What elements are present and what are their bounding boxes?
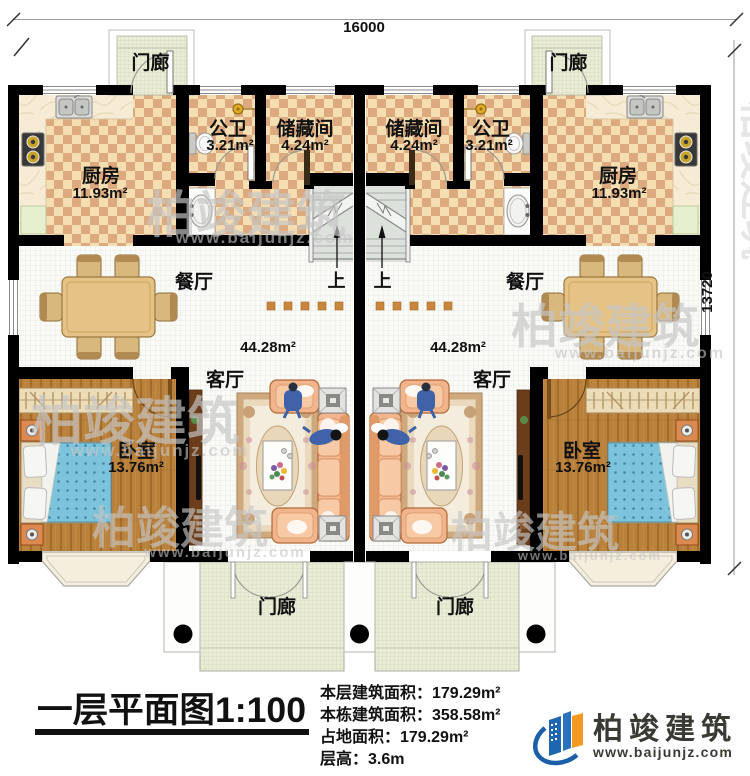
svg-text:www.baijunjz.com: www.baijunjz.com — [592, 744, 733, 760]
svg-text:门廊: 门廊 — [436, 595, 474, 618]
svg-text:www.baijunjz.com: www.baijunjz.com — [554, 345, 725, 362]
svg-text:层高：3.6m: 层高：3.6m — [320, 749, 404, 768]
svg-text:13720: 13720 — [699, 271, 716, 313]
svg-text:厨房: 厨房 — [599, 164, 637, 187]
svg-text:客厅: 客厅 — [206, 368, 244, 391]
svg-text:柏竣建筑: 柏竣建筑 — [593, 712, 737, 746]
svg-text:占地面积：179.29m²: 占地面积：179.29m² — [320, 727, 469, 746]
svg-text:44.28m²: 44.28m² — [240, 339, 296, 356]
svg-text:门廊: 门廊 — [131, 51, 169, 74]
svg-text:13.76m²: 13.76m² — [555, 459, 611, 476]
svg-text:www.baijunjz.com: www.baijunjz.com — [175, 228, 355, 247]
svg-text:上: 上 — [374, 271, 392, 291]
svg-text:16000: 16000 — [343, 19, 385, 36]
svg-text:厨房: 厨房 — [82, 164, 120, 187]
svg-text:本栋建筑面积：358.58m²: 本栋建筑面积：358.58m² — [320, 705, 501, 724]
svg-text:11.93m²: 11.93m² — [591, 185, 646, 202]
svg-text:44.28m²: 44.28m² — [430, 339, 486, 356]
svg-text:4.24m²: 4.24m² — [390, 137, 438, 154]
svg-text:餐厅: 餐厅 — [175, 270, 213, 293]
svg-text:www.baijunjz.com: www.baijunjz.com — [70, 441, 250, 460]
svg-text:13.76m²: 13.76m² — [108, 459, 164, 476]
svg-text:本层建筑面积：179.29m²: 本层建筑面积：179.29m² — [320, 683, 501, 702]
svg-text:4.24m²: 4.24m² — [281, 137, 329, 154]
svg-text:门廊: 门廊 — [258, 595, 296, 618]
svg-text:餐厅: 餐厅 — [506, 270, 544, 293]
svg-text:柏竣建筑: 柏竣建筑 — [736, 100, 750, 260]
svg-text:3.21m²: 3.21m² — [465, 137, 513, 154]
svg-text:一层平面图1:100: 一层平面图1:100 — [37, 691, 306, 730]
svg-text:11.93m²: 11.93m² — [72, 185, 127, 202]
svg-text:上: 上 — [328, 271, 346, 291]
svg-text:客厅: 客厅 — [473, 368, 511, 391]
svg-text:3.21m²: 3.21m² — [206, 137, 254, 154]
svg-text:门廊: 门廊 — [549, 51, 587, 74]
svg-text:www.baijunjz.com: www.baijunjz.com — [143, 544, 305, 561]
svg-text:www.baijunjz.com: www.baijunjz.com — [517, 548, 662, 563]
